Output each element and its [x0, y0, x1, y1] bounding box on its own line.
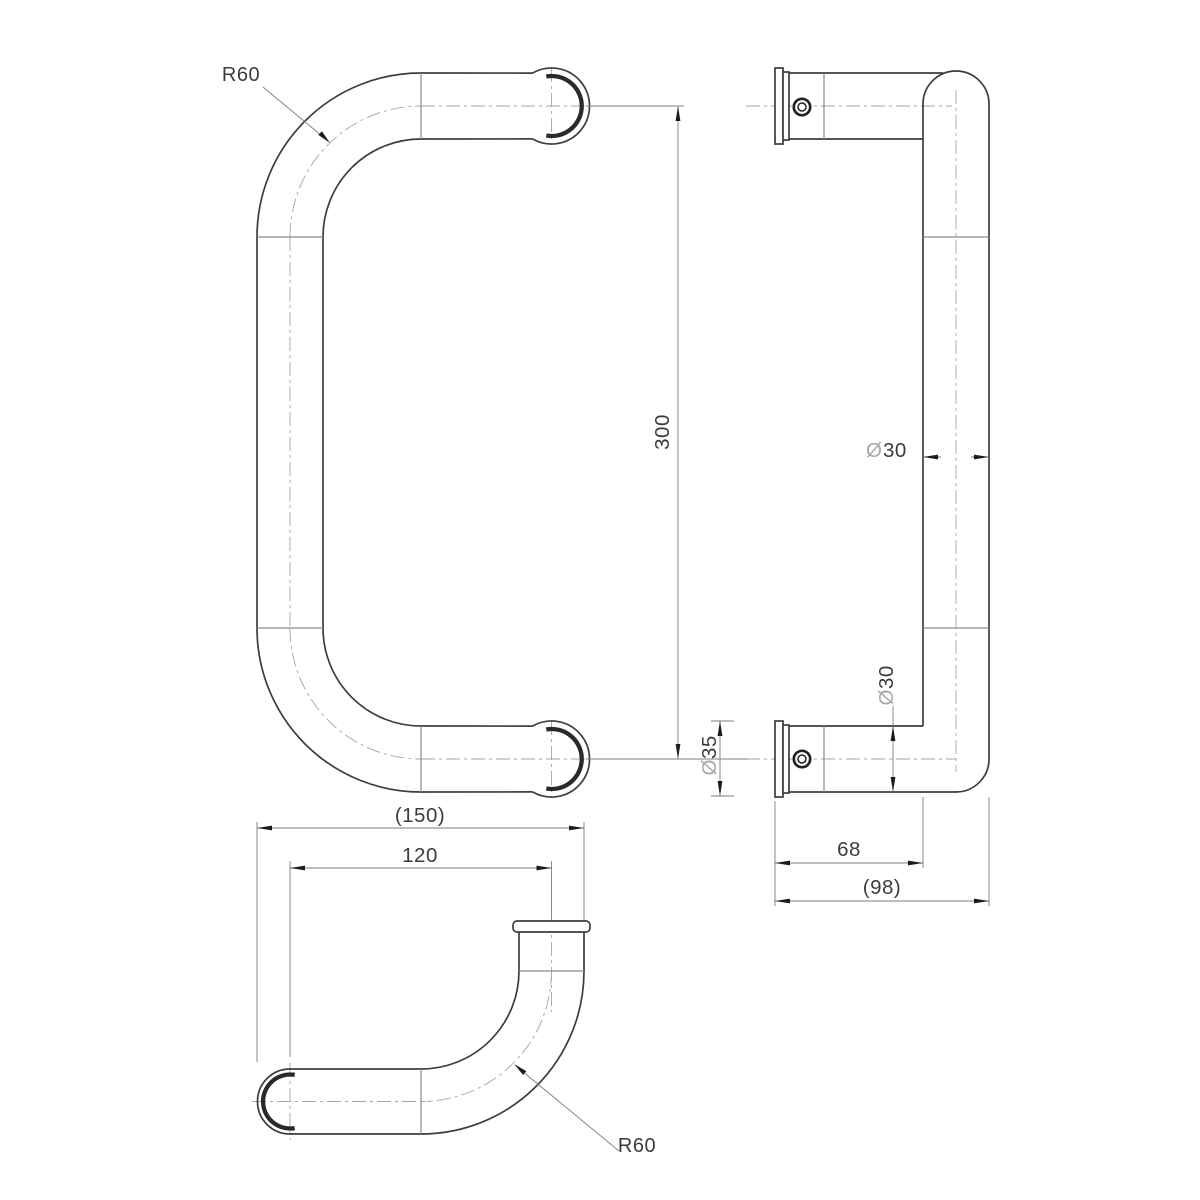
overall-projection-label: (98)	[863, 876, 901, 899]
bend-radius-bottom-label: R60	[618, 1135, 656, 1157]
top-set-screw	[794, 99, 810, 115]
canvas	[0, 0, 1200, 1200]
leg-tube-diameter-label: 30	[875, 665, 898, 689]
diameter-symbol: Ø	[866, 439, 882, 462]
projection-label: 68	[837, 838, 861, 861]
top-mounting-rose	[775, 68, 789, 144]
diameter-symbol: Ø	[698, 759, 721, 775]
overall-width-label: (150)	[395, 804, 445, 827]
diameter-symbol: Ø	[875, 689, 898, 705]
rose-diameter-label: 35	[698, 735, 721, 759]
bend-radius-top-label: R60	[222, 64, 260, 86]
grip-tube-diameter-label: 30	[883, 439, 907, 462]
bottom-set-screw	[794, 751, 810, 767]
centres-width-label: 120	[402, 844, 438, 867]
bottom-mounting-rose	[775, 721, 789, 797]
grip-length-label: 300	[651, 414, 674, 450]
technical-drawing: R60	[0, 0, 1200, 1200]
